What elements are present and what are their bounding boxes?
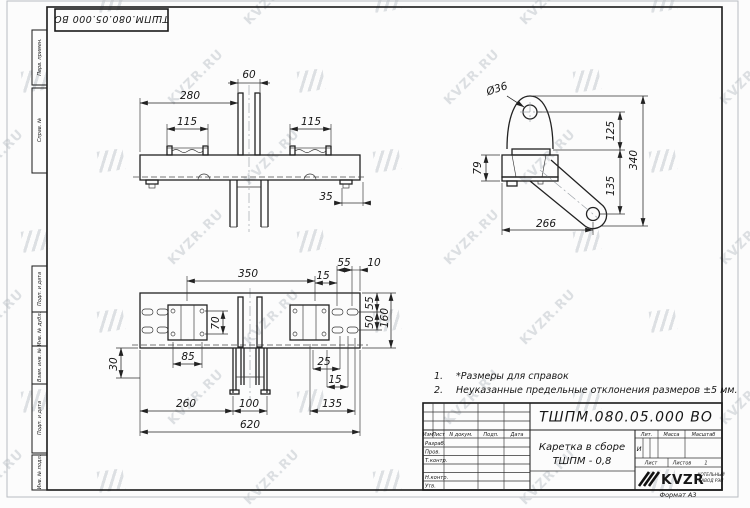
dim-label: 30 [108,357,120,371]
plan-view: 350 15 55 10 55 50 160 70 85 30 [108,257,396,436]
row-prov: Пров. [425,450,440,456]
stamp-designation: ТШПМ.080.05.000 ВО [54,13,169,24]
frame-label-podp-data-2: Подп. и дата [37,401,43,435]
pad-right [290,305,329,340]
dim-label: 10 [367,257,381,269]
frame-label-inv-podl: Инв. № подл. [37,455,43,490]
plan-dimensions: 350 15 55 10 55 50 160 70 85 30 [108,257,396,436]
listov-value: 1 [704,461,707,467]
notes: 1. *Размеры для справок 2. Неуказанные п… [434,371,737,396]
block-foot [507,181,517,186]
dim-label: 620 [240,419,260,431]
note-text: *Размеры для справок [456,371,569,382]
drawing-canvas: ТШПМ.080.05.000 ВО Перв. примен. Справ. … [0,0,750,500]
dim-label: 15 [316,270,330,282]
side-view: Ø36 79 125 135 340 266 [472,80,648,235]
dim-label: 79 [472,161,484,175]
title-block: Изм Лист N докум. Подп. Дата Разраб. Про… [423,403,726,490]
row-razrab: Разраб. [425,441,445,447]
note-text: Неуказанные предельные отклонения размер… [456,385,737,396]
note-number: 1. [434,371,443,382]
bolt-right [340,180,352,188]
dim-label: 125 [605,121,617,141]
logo-subtitle-1: КОТЕЛЬНЫЙ [697,472,725,477]
dim-label: 55 [337,257,351,269]
dim-label: 55 [364,296,376,310]
dim-label: 60 [242,69,256,81]
format-label: Формат А3 [659,491,696,499]
logo-stripes-icon [639,472,659,486]
massa-label: Масса [664,432,680,438]
bolt-left [146,180,158,188]
pad-left [168,305,207,340]
lit-value: И [637,445,642,453]
dim-label: Ø36 [484,80,510,99]
part-name: Каретка в сборе [539,441,625,453]
buffer-pad-right [290,146,331,155]
dim-label: 100 [239,398,259,410]
buffer-pad-left [167,146,208,155]
upright-plate-right [255,93,260,155]
block-outline [502,155,558,177]
dim-label: 340 [628,150,640,170]
dim-label: 350 [238,268,258,280]
slots-right [332,309,358,333]
note-number: 2. [434,385,443,396]
machine-name: ТШПМ - 0,8 [553,456,612,467]
col-ndok: N докум. [449,432,472,438]
row-tkontr: Т.контр. [425,458,447,464]
logo-subtitle-2: ЗАВОД РЭП [699,478,725,483]
frame-columns: Перв. примен. Справ. № Подп. и дата Инв.… [32,30,47,490]
dim-label: 135 [322,398,342,410]
dim-label: 115 [301,116,321,128]
frame-label-inv-dubl: Инв. № дубл. [37,312,43,346]
dim-label: 260 [176,398,196,410]
dim-label: 15 [328,374,342,386]
beam-outline [140,155,360,180]
listov-label: Листов [672,461,692,467]
dim-label: 266 [536,218,556,230]
upright-plate-left [238,93,243,155]
col-list: Лист [431,432,446,438]
lug-base-plate [512,149,550,155]
col-podp: Подп. [483,432,498,438]
masshtab-label: Масштаб [692,432,716,438]
frame-label-vzam-inv: Взам. инв. № [37,348,43,382]
frame-label-sprav-no: Справ. № [37,118,43,142]
company-logo: KVZR КОТЕЛЬНЫЙ ЗАВОД РЭП [639,472,725,488]
dim-label: 35 [319,191,333,203]
lit-label: Лит. [640,432,653,438]
dim-label: 160 [379,308,391,328]
drawing-sheet: { "sheet": { "watermark": "KVZR.RU", "fo… [0,0,750,500]
slots-left [142,309,168,333]
dim-label: 50 [364,315,376,329]
row-nkontr: Н.контр. [425,475,448,481]
dim-label: 135 [605,176,617,196]
side-dimensions: Ø36 79 125 135 340 266 [472,80,648,235]
frame-label-podp-data-1: Подп. и дата [37,272,43,306]
list-label: Лист [644,461,659,467]
dim-label: 70 [210,316,222,330]
frame-label-perv-primen: Перв. примен. [37,38,43,76]
dim-label: 25 [317,356,331,368]
dim-label: 85 [181,351,195,363]
dim-label: 115 [177,116,197,128]
top-stamp: ТШПМ.080.05.000 ВО [54,9,169,31]
dim-label: 280 [180,90,200,102]
designation: ТШПМ.080.05.000 ВО [539,410,713,426]
front-view: 60 280 115 115 35 [133,69,371,232]
row-utv: Утв. [425,484,436,490]
col-data: Дата [510,432,524,438]
